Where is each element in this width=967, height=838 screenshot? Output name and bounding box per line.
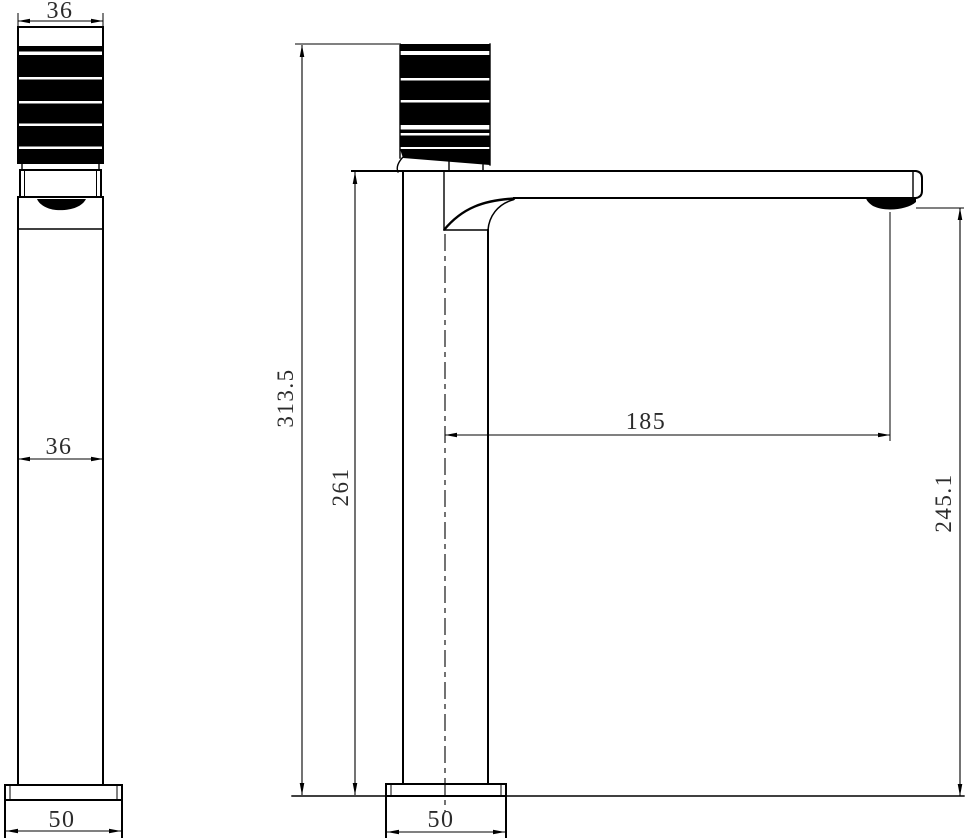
dim-side-overall-height: 313.5 — [273, 44, 399, 795]
dim-front-base-width: 50 — [6, 807, 121, 833]
drawing-sheet: 36 3 — [0, 0, 967, 838]
faucet-collar-front — [20, 170, 101, 197]
faucet-handle-side — [397, 44, 490, 172]
dim-front-body-width: 36 — [18, 434, 103, 461]
aerator — [866, 198, 916, 209]
dim-side-base-width-label: 50 — [428, 807, 455, 833]
side-view: 313.5 261 — [273, 44, 964, 838]
faucet-technical-drawing: 36 3 — [0, 0, 967, 838]
dim-side-body-height: 261 — [328, 172, 357, 795]
dim-side-spout-reach-label: 185 — [626, 409, 667, 435]
dim-side-spout-reach: 185 — [445, 212, 890, 441]
spout-end-cap — [913, 171, 922, 198]
dim-side-base-width: 50 — [387, 807, 505, 834]
dim-front-body-width-label: 36 — [46, 434, 73, 460]
faucet-handle-front — [18, 27, 103, 170]
dim-side-body-height-label: 261 — [328, 468, 353, 507]
dim-front-handle-width: 36 — [18, 0, 103, 26]
faucet-body-side — [403, 171, 488, 812]
spout-underside-inner-curve — [488, 200, 514, 231]
dim-side-overall-height-label: 313.5 — [273, 368, 298, 427]
dim-side-outlet-height: 245.1 — [916, 208, 964, 796]
dim-front-base-width-label: 50 — [49, 807, 76, 833]
front-view: 36 3 — [5, 0, 122, 838]
spout-outlet-shadow — [37, 199, 86, 210]
dim-front-handle-width-label: 36 — [47, 0, 74, 24]
faucet-body-front — [18, 197, 103, 785]
dim-side-outlet-height-label: 245.1 — [931, 473, 956, 532]
faucet-spout — [352, 171, 922, 230]
